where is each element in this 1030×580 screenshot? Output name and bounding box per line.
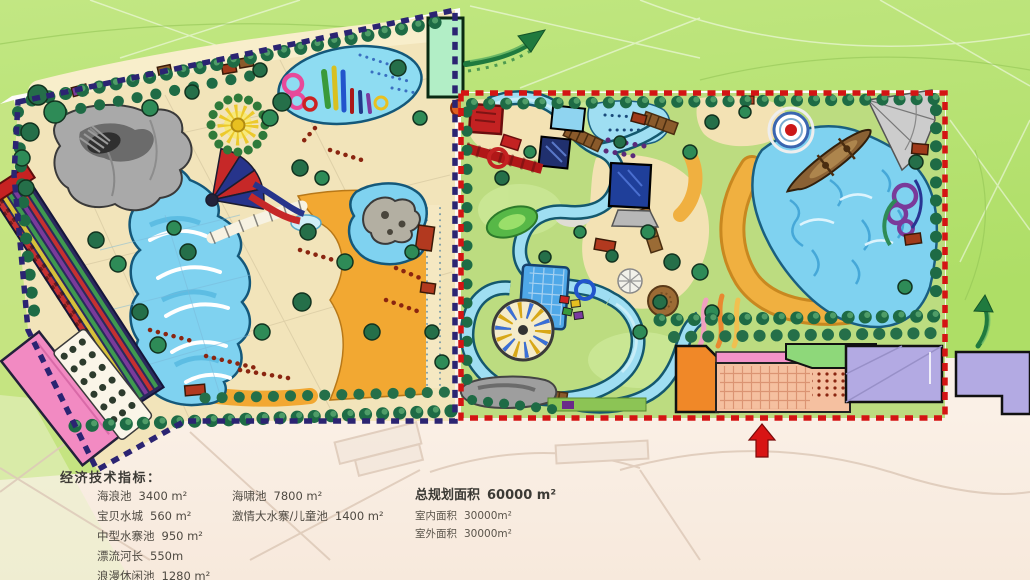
- water-park-zone-a: [0, 10, 467, 470]
- rock-mountain: [54, 105, 192, 210]
- purple-building: [846, 346, 942, 402]
- umbrella-canopy: [618, 269, 642, 293]
- service-buildings: [676, 344, 942, 412]
- water-park-zone-b: [461, 90, 1030, 418]
- entrance-plaza: [716, 363, 850, 412]
- site-plan-svg: [0, 0, 1030, 580]
- target-rings-feature: [769, 108, 813, 152]
- orange-building: [676, 346, 718, 412]
- master-plan-canvas: 经济技术指标： 海浪池3400 m² 宝贝水城560 m² 中型水寨池950 m…: [0, 0, 1030, 580]
